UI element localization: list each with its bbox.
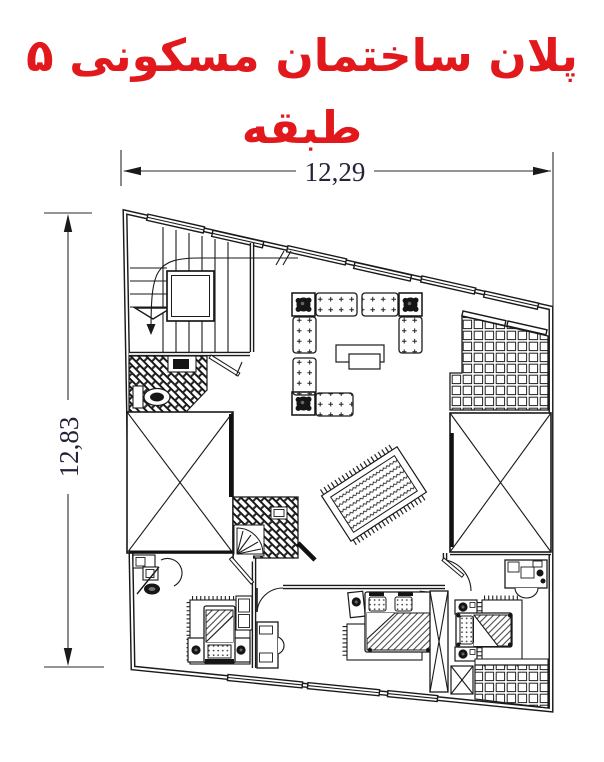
sofa — [293, 358, 316, 395]
lightwell-right — [450, 413, 551, 552]
shower-quarter-fan-icon — [234, 525, 264, 556]
terrace-bottom-right — [475, 659, 548, 708]
lightwell-left — [127, 412, 233, 553]
closet — [430, 591, 448, 692]
sofa — [399, 317, 422, 353]
sink-icon — [168, 356, 196, 372]
nightstand — [455, 647, 477, 661]
single-bed — [456, 613, 512, 647]
sink-icon — [271, 507, 287, 519]
elevator — [167, 271, 214, 321]
plant-icon — [458, 649, 467, 658]
dimension-left: 12,83 — [44, 213, 104, 667]
floor-plan-drawing: 12,29 12,83 — [0, 0, 604, 762]
nightstand — [188, 638, 205, 662]
sofa — [293, 317, 316, 353]
desk-lamp-icon — [537, 570, 544, 577]
plant-icon — [236, 645, 245, 654]
dim-arrow-up — [64, 214, 72, 232]
dim-arrow-down — [64, 648, 72, 666]
sofa — [316, 393, 353, 416]
single-bed — [204, 606, 235, 663]
plant-icon — [292, 293, 315, 316]
plant-icon — [458, 602, 467, 611]
plant-icon — [191, 645, 200, 654]
dimension-width-label: 12,29 — [305, 157, 366, 187]
dresser — [236, 596, 252, 630]
double-bed — [365, 592, 432, 652]
nightstand — [348, 591, 366, 617]
closet — [451, 666, 473, 694]
dim-arrow-right — [533, 167, 551, 175]
dimension-height-label: 12,83 — [54, 417, 84, 478]
floor-plan-page: پلان ساختمان مسکونی ۵ طبقه — [0, 0, 604, 762]
sofa — [362, 293, 398, 316]
plant-icon — [399, 293, 422, 316]
dim-arrow-left — [123, 167, 141, 175]
nightstand — [455, 600, 477, 614]
sofa — [316, 293, 357, 316]
